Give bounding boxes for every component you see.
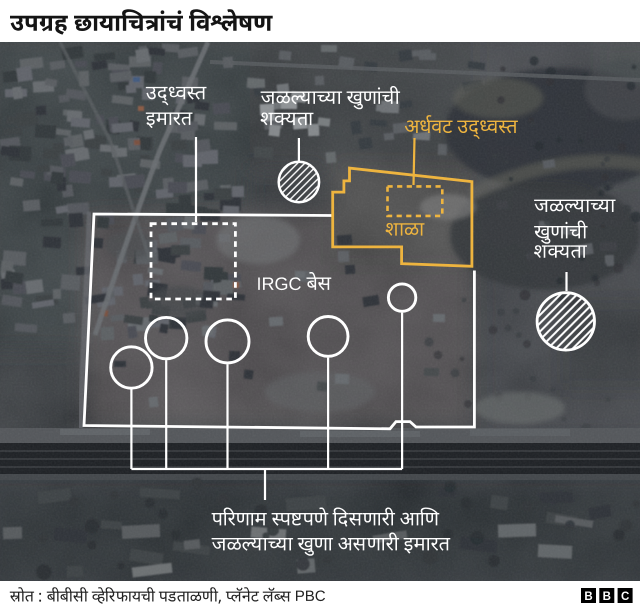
svg-text:B: B — [603, 591, 611, 603]
svg-text:C: C — [621, 591, 629, 603]
svg-text:B: B — [584, 591, 592, 603]
